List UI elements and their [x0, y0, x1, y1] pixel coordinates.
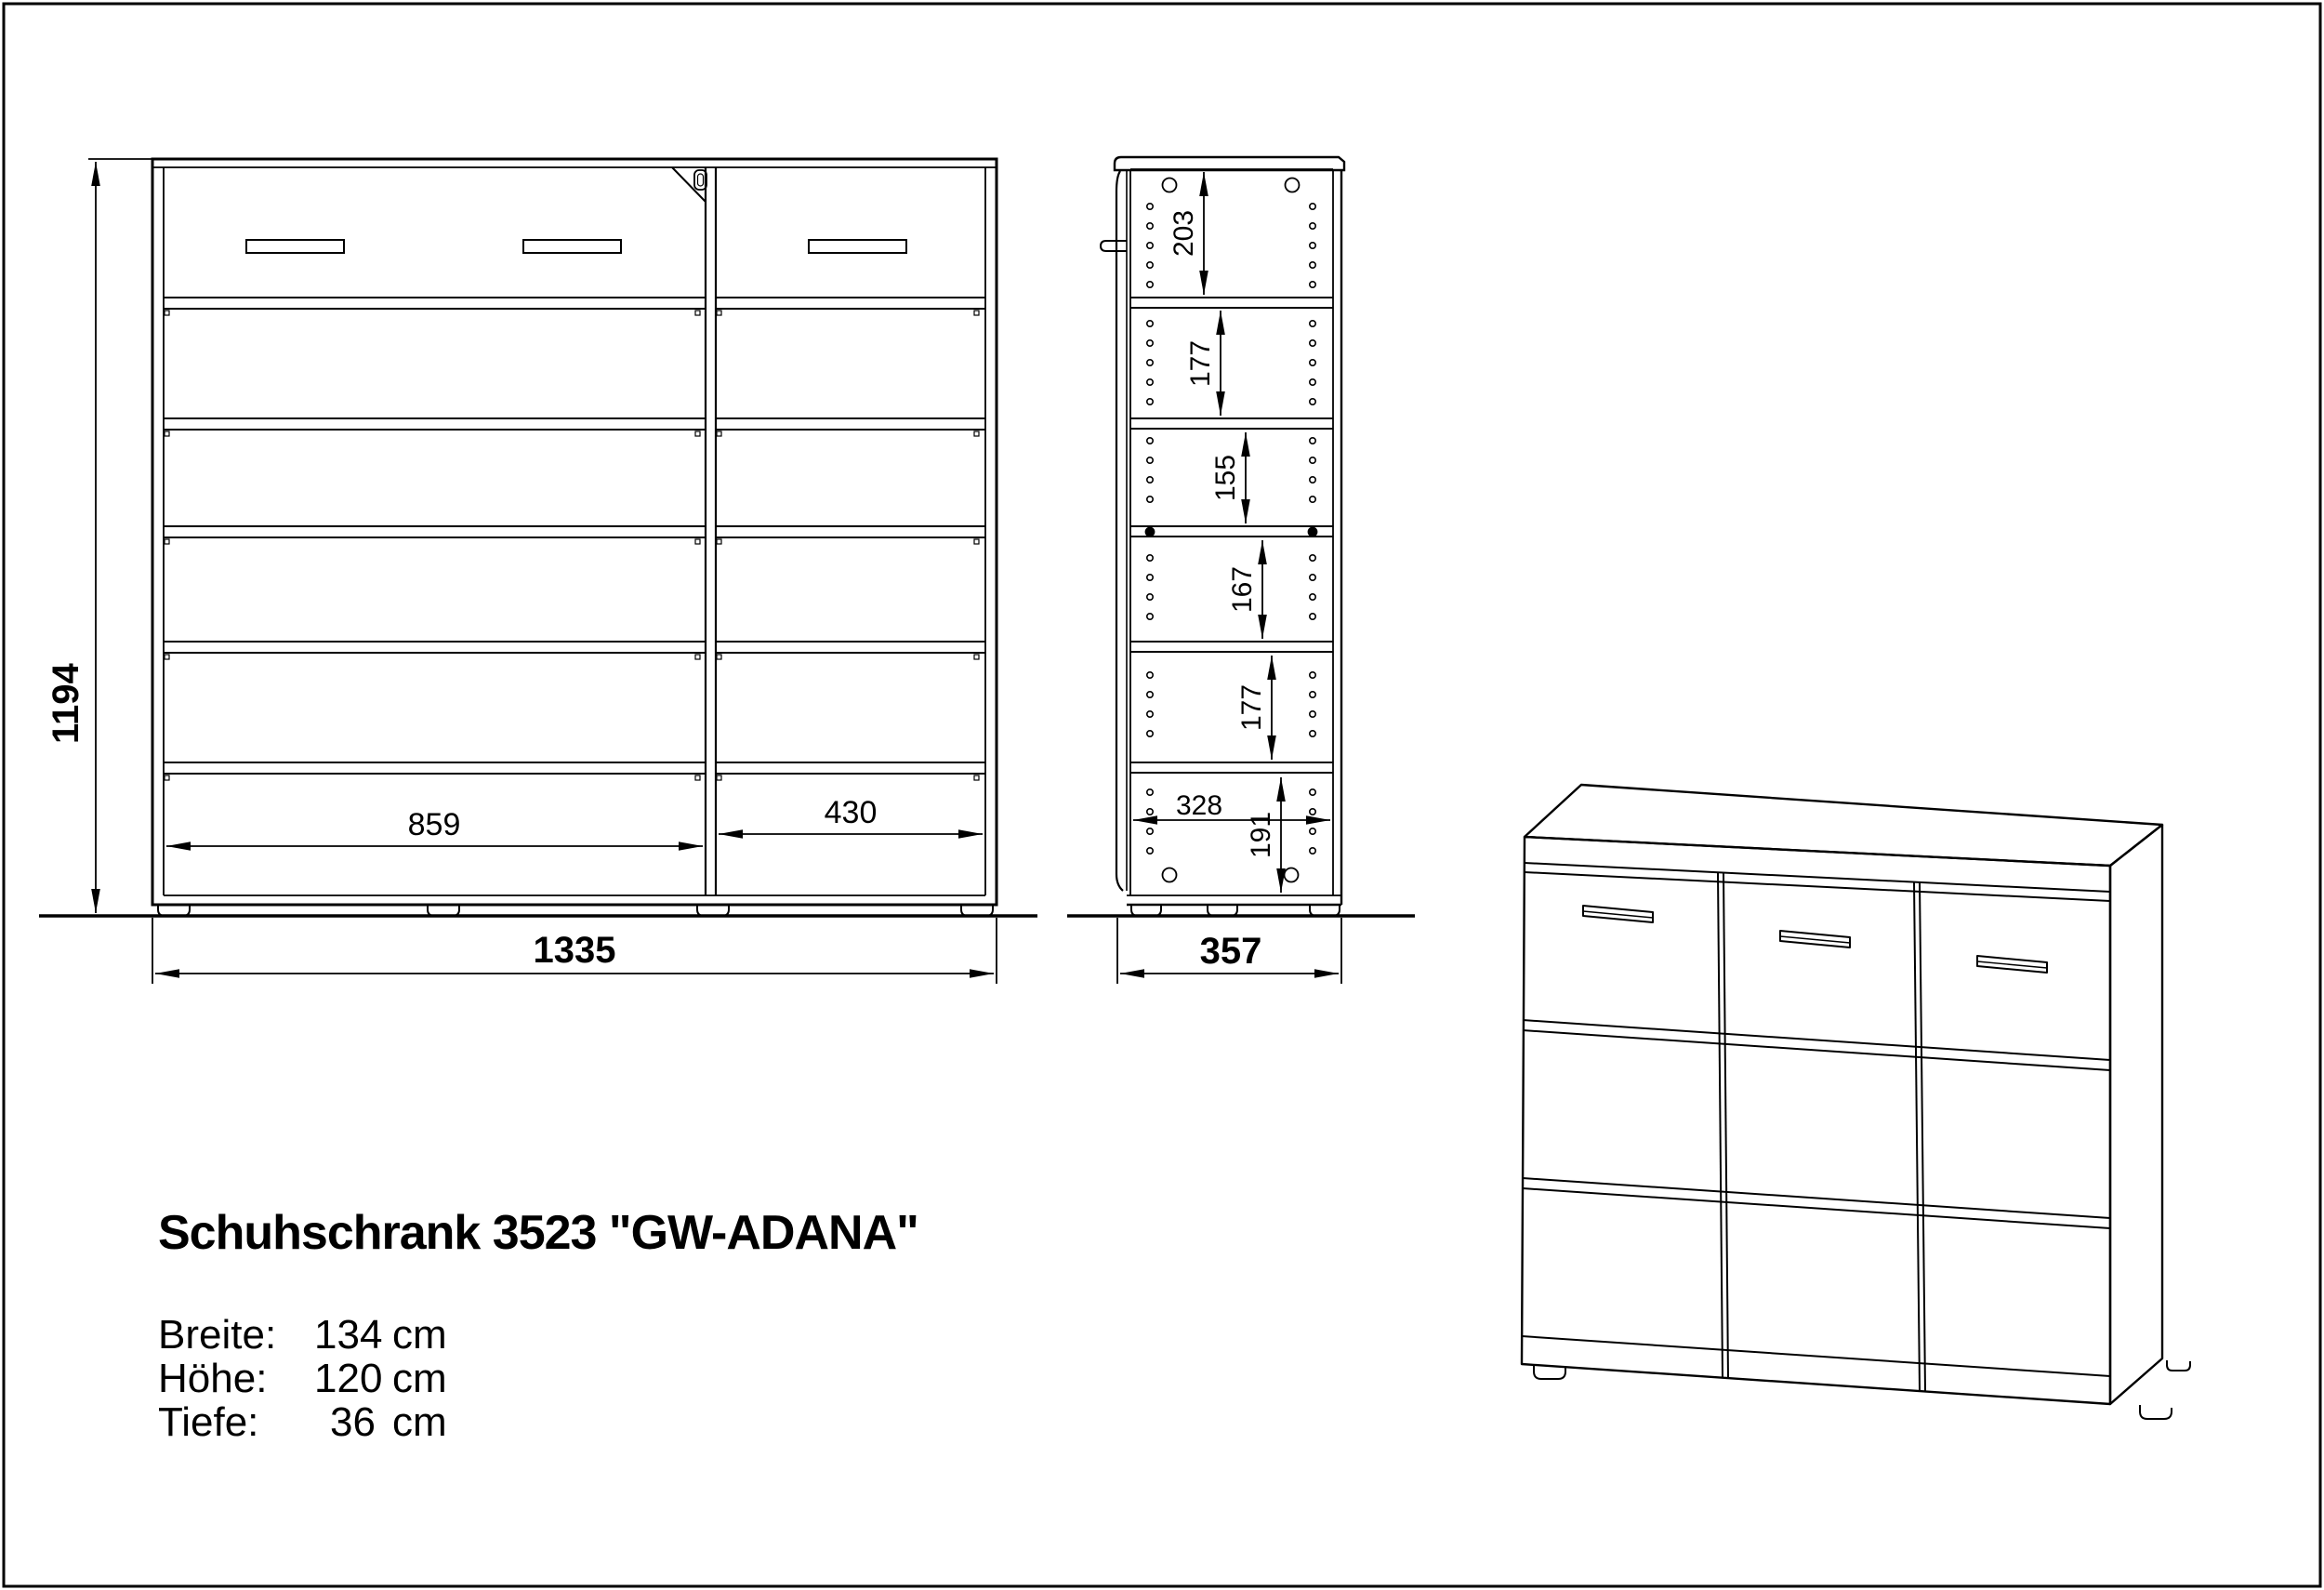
- spec-label: Höhe:: [158, 1357, 314, 1400]
- door-handle: [1583, 906, 1653, 922]
- side-shelves: [1130, 298, 1333, 773]
- cam-fitting-icon: [1285, 868, 1299, 882]
- dim-label-357: 357: [1200, 931, 1262, 972]
- door-handle: [1780, 931, 1850, 947]
- perspective-view-drawing: [1522, 785, 2190, 1419]
- spec-row-tiefe: Tiefe: 36 cm: [158, 1400, 918, 1444]
- dim-label-191: 191: [1246, 812, 1276, 858]
- shelf-support-notches: [165, 311, 979, 780]
- spec-table: Breite: 134 cm Höhe: 120 cm Tiefe: 36 cm: [158, 1313, 918, 1444]
- spec-unit: cm: [392, 1357, 447, 1400]
- side-view-drawing: 203 177 155 167 177 191 328 357: [1067, 157, 1415, 984]
- product-title: Schuhschrank 3523 "GW-ADANA": [158, 1205, 918, 1261]
- door-edge: [1116, 171, 1123, 891]
- hinge-diagonal: [672, 167, 706, 202]
- drawer-handle: [246, 240, 344, 253]
- dim-label-177a: 177: [1185, 340, 1216, 387]
- dim-label-203: 203: [1169, 210, 1199, 257]
- title-block: Schuhschrank 3523 "GW-ADANA" Breite: 134…: [158, 1205, 918, 1444]
- perspective-feet: [1534, 1360, 2190, 1419]
- dim-label-167: 167: [1227, 566, 1258, 613]
- spec-unit: cm: [392, 1400, 447, 1444]
- shelf-pin-holes: [1147, 204, 1315, 854]
- dim-label-1194: 1194: [46, 662, 86, 744]
- drawer-handle: [809, 240, 906, 253]
- dim-label-155: 155: [1210, 455, 1241, 501]
- spec-label: Tiefe:: [158, 1400, 314, 1444]
- spec-row-breite: Breite: 134 cm: [158, 1313, 918, 1357]
- handle-profile-icon: [1101, 241, 1127, 251]
- cam-fitting-icon: [1286, 179, 1300, 192]
- door-handle: [1977, 956, 2047, 973]
- drawing-sheet: 1194 859 430 1335: [0, 0, 2324, 1590]
- dim-label-859: 859: [408, 807, 461, 842]
- spec-unit: cm: [392, 1313, 447, 1357]
- spec-label: Breite:: [158, 1313, 314, 1357]
- drawer-handle: [523, 240, 621, 253]
- dim-front-height: [88, 159, 152, 913]
- front-shelves: [164, 298, 985, 774]
- dim-label-430: 430: [825, 795, 878, 830]
- cam-fitting-icon: [1163, 868, 1177, 882]
- cam-fitting-icon: [1163, 179, 1177, 192]
- dim-label-1335: 1335: [534, 930, 616, 971]
- spec-value: 134: [314, 1313, 376, 1357]
- spec-row-hoehe: Höhe: 120 cm: [158, 1357, 918, 1400]
- front-view-drawing: 1194 859 430 1335: [39, 159, 1037, 984]
- spec-value: 36: [314, 1400, 376, 1444]
- dim-label-328: 328: [1176, 790, 1222, 821]
- side-feet: [1131, 905, 1340, 916]
- spec-value: 120: [314, 1357, 376, 1400]
- front-feet: [158, 905, 993, 916]
- dim-label-177b: 177: [1236, 684, 1267, 731]
- dim-side-sections: [1133, 172, 1330, 893]
